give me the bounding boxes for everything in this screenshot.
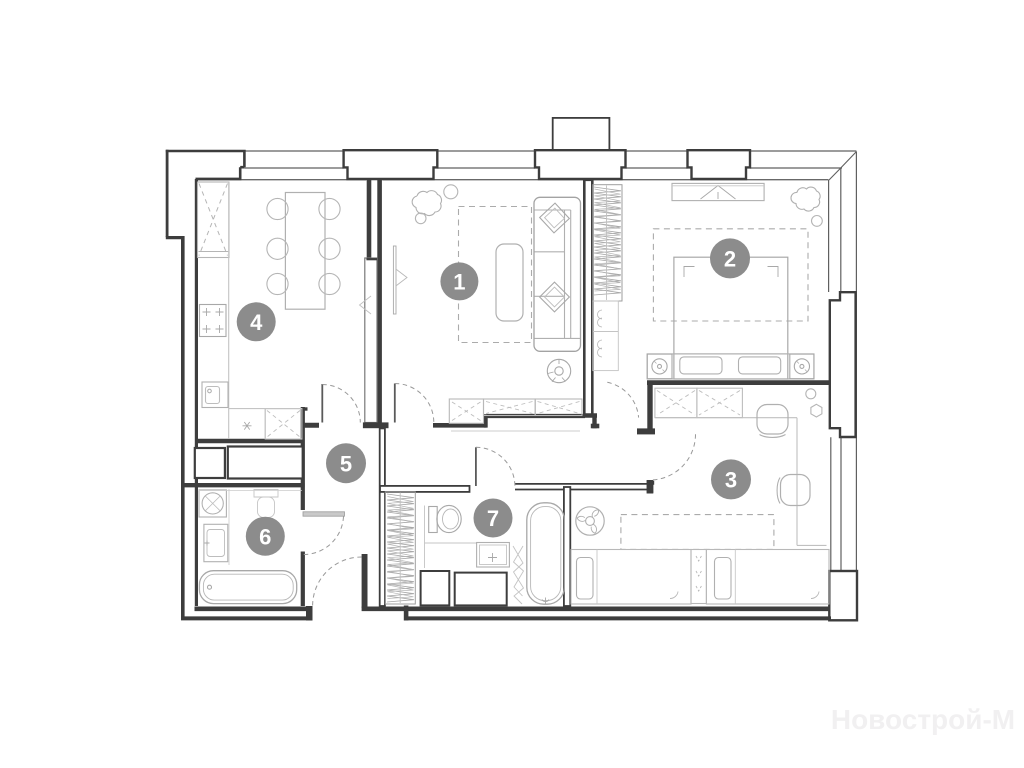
svg-text:6: 6	[259, 524, 271, 549]
svg-text:3: 3	[725, 468, 737, 493]
svg-text:2: 2	[724, 247, 736, 272]
svg-text:Новострой-М: Новострой-М	[831, 704, 1015, 735]
svg-text:7: 7	[487, 506, 499, 531]
svg-text:5: 5	[340, 451, 352, 476]
svg-text:1: 1	[453, 269, 465, 294]
svg-text:4: 4	[250, 310, 263, 335]
